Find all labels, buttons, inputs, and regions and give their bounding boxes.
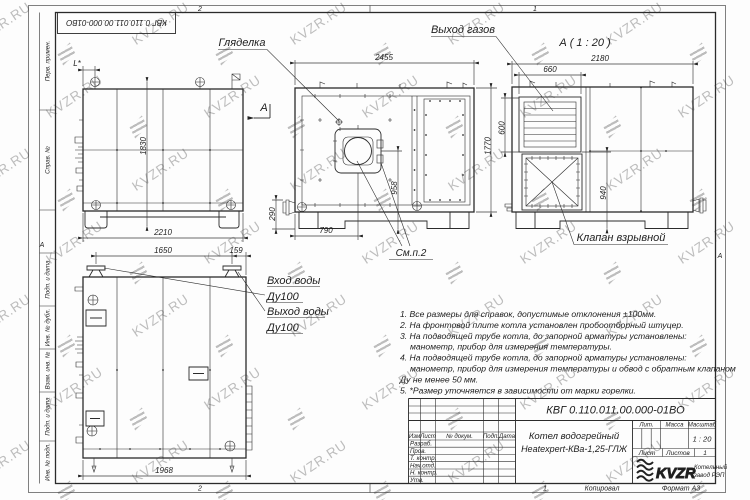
svg-text:Гляделка: Гляделка [219,37,266,49]
stamp-sprav-n: Справ. № [45,146,52,174]
dim-600: 600 [498,121,507,135]
water-out-label: Выход воды [267,306,329,318]
dim-1770: 1770 [484,137,493,155]
callout-see-item: См.п.2 [357,161,433,260]
dim-l-star: L* [73,59,81,68]
col-sign: Подп. [483,433,499,440]
water-in-dn: Ду100 [265,291,300,303]
row-nkontr: Н. контр. [410,470,438,477]
stamp-podp-data-2: Подп. и дата [45,397,52,436]
bottom-view-valves [87,295,235,451]
water-out-dn: Ду100 [265,322,300,334]
dim-790: 790 [319,226,333,235]
view-rear-a: 2180 660 600 940 [498,54,707,229]
dim-159: 159 [229,246,243,255]
coil-icon [637,460,653,481]
title-block: КВГ 0.110.011.00.000-01ВО Котел водогрей… [409,399,728,493]
note-5: 5. *Размер уточняется в зависимости от м… [400,385,636,395]
top-designation-box: КВГ 0.110.011.00.000-01ВО [58,13,176,34]
company-logo: KVZR Котельный завод РЭП [637,460,728,482]
footer-format: Формат А3 [662,486,700,493]
col-date: Дата [498,433,516,440]
dim-1968: 1968 [155,466,173,475]
stamp-inv-podl: Инв. № подл. [45,443,52,481]
water-nozzles [87,266,241,277]
notes-block: 1. Все размеры для справок, допустимые о… [399,309,736,395]
note-2: 2. На фронтовой плите котла установлен п… [399,320,684,330]
view-front: 2455 1770 958 790 [283,53,497,240]
callout-water: Вход воды Ду100 Выход воды Ду100 [104,268,329,334]
mass-label: Масса [665,422,684,429]
footer-zone: 1 [543,486,547,493]
col-izm: Изм [409,433,421,440]
dim-1650: 1650 [154,246,172,255]
row-prov: Пров. [410,448,426,455]
sheet-frame: 2 1 2 А А Перв. примен. Справ. № Подп. и… [29,6,726,493]
sheet-label: Лист [638,450,656,457]
callout-gas-outlet: Выход газов [431,24,553,111]
row-utv: Утв. [409,477,424,484]
col-list: Лист [419,433,436,440]
zone-top-left: 2 [197,6,202,13]
dims-view1: L* 1830 2210 290 [73,59,295,242]
sheets-value: 1 [703,450,707,457]
scale-label: Масштаб [688,422,717,429]
burner-plate [333,125,383,173]
view-bottom: 1650 159 1968 [75,246,252,480]
dim-660: 660 [543,65,557,74]
zone-top-right: 1 [533,6,537,13]
dims-view4: 1650 159 1968 [83,246,246,480]
zone-right-a: А [717,253,723,260]
drain-valves-side [92,201,236,210]
row-tkontr: Т. контр. [410,455,436,462]
callout-sight-glass: Гляделка [218,37,339,121]
dim-2210: 2210 [153,228,172,237]
drawing-sheet: KVZR.RUKVZR.RUKVZR.RUKVZR.RUKVZR.RUKVZR.… [0,0,750,500]
dim-2180: 2180 [590,54,609,63]
dim-1830: 1830 [139,137,148,155]
product-name-2: Heatexpert-КВа-1,25-ГЛЖ [521,444,628,454]
callout-explosion-valve: Клапан взрывной [552,182,668,245]
boiler-drawing: 2 1 2 А А Перв. примен. Справ. № Подп. и… [0,0,750,500]
company-line-1: Котельный [694,464,728,471]
svg-text:См.п.2: См.п.2 [396,248,427,259]
note-4: 4. На подводящей трубе котла, до запорно… [400,353,687,363]
note-4b: манометр, прибор для измерения температу… [410,364,736,374]
dim-940: 940 [599,186,608,200]
callouts: Гляделка Выход газов А ( 1 : 20 ) Клапан… [104,24,668,334]
section-arrow: А [254,102,270,118]
product-name-1: Котел водогрейный [529,431,620,442]
scale-value: 1 : 20 [693,435,713,444]
sheets-label: Листов [665,450,690,457]
note-3b: манометр, прибор для измерения температу… [410,342,612,352]
svg-text:Выход газов: Выход газов [431,24,495,36]
stamp-podp-data-1: Подп. и дата [45,260,52,299]
stamp-vzam-inv: Взам. инв. № [45,351,52,389]
note-3: 3. На подводящей трубе котла, до запорно… [400,331,687,341]
gas-outlet-louver [519,97,581,152]
dim-290: 290 [268,207,277,222]
doc-designation: КВГ 0.110.011.00.000-01ВО [546,405,685,417]
zone-bottom-left: 2 [197,486,202,493]
water-in-label: Вход воды [267,275,320,287]
lit-label: Лит. [638,422,653,429]
top-designation-text: КВГ 0.110.011.00.000-01ВО [66,18,167,27]
note-4c: Ду не менее 50 мм. [399,374,478,384]
row-razrab: Разраб. [410,441,432,448]
footer-copied: Копировал [585,486,620,493]
section-arrow-letter: А [259,102,267,114]
row-nachotd: Нач.отд. [410,462,436,469]
stamp-inv-dubl: Инв. № дубл. [45,309,52,346]
logo-text: KVZR [656,466,696,482]
note-1: 1. Все размеры для справок, допустимые о… [400,309,656,319]
stamp-perv-primen: Перв. примен. [45,41,52,82]
section-view-title: А ( 1 : 20 ) [558,37,611,49]
view-side: L* 1830 2210 290 А [73,59,295,242]
svg-text:Клапан взрывной: Клапан взрывной [577,232,666,244]
sight-glass [335,118,343,126]
company-line-2: завод РЭП [693,472,725,479]
col-doc: № докум. [446,433,473,440]
dim-2455: 2455 [374,53,393,62]
lifting-lugs [91,74,241,89]
front-valves [298,202,422,212]
